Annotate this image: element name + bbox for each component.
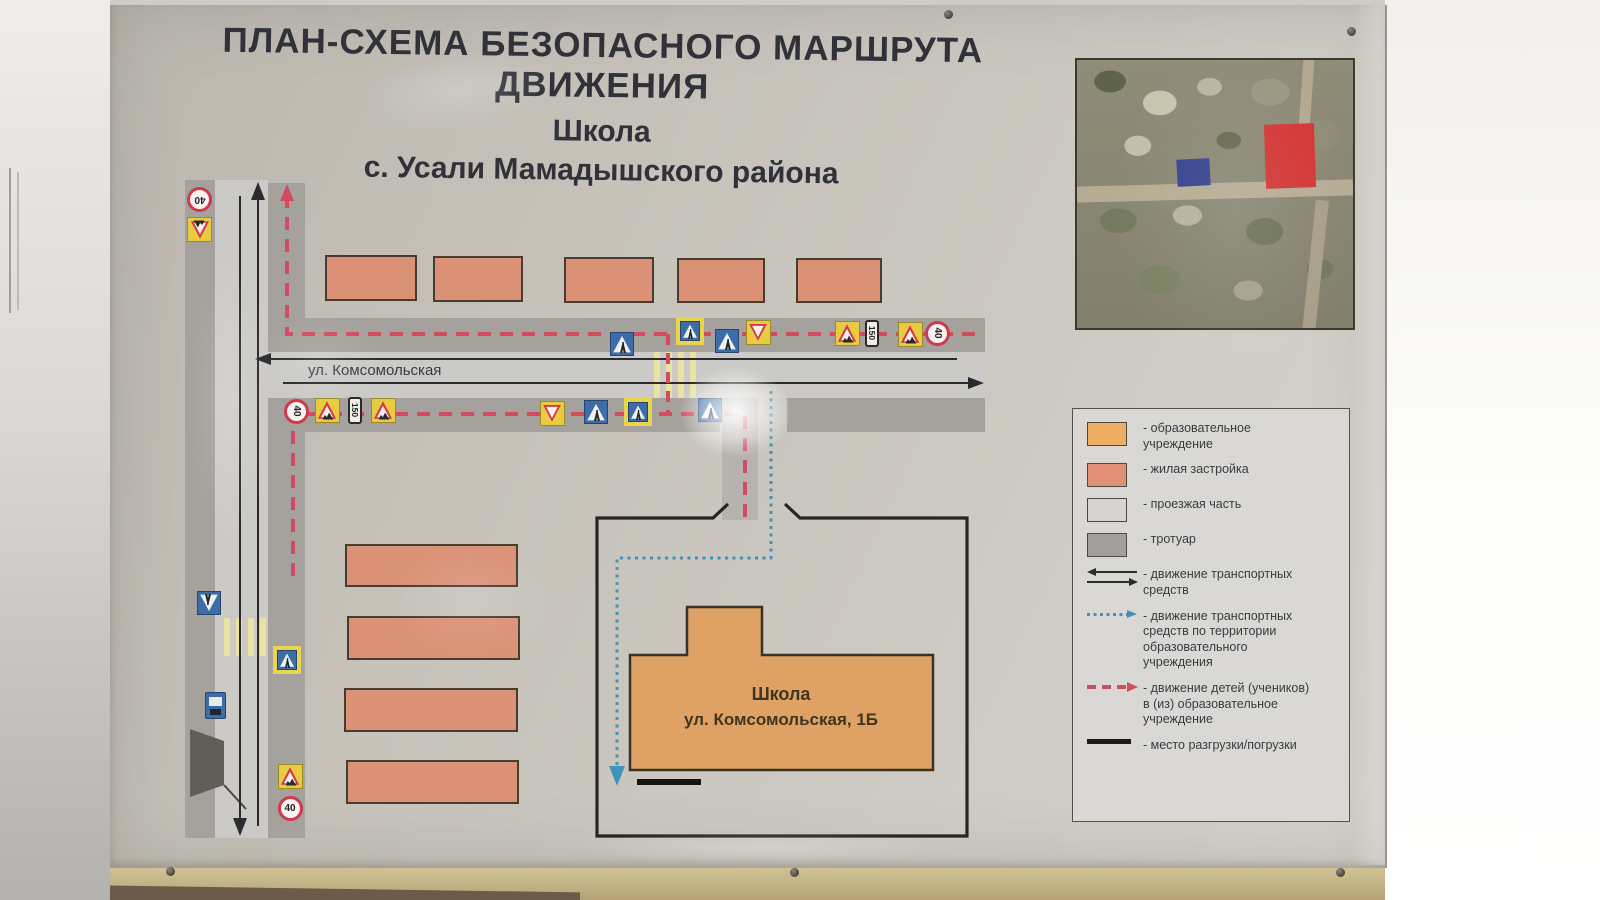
title-line-1: ПЛАН-СХЕМА БЕЗОПАСНОГО МАРШРУТА ДВИЖЕНИЯ bbox=[112, 19, 1093, 113]
residential-building bbox=[325, 255, 417, 301]
two-way-traffic-arrows-icon bbox=[1087, 568, 1143, 586]
legend-item: - образовательное учреждение bbox=[1087, 421, 1343, 452]
residential-building bbox=[345, 544, 518, 587]
residential-building bbox=[433, 256, 523, 302]
legend-item-label: - жилая застройка bbox=[1143, 462, 1313, 478]
speed-limit-40-sign-icon: 40 bbox=[922, 317, 954, 349]
dotted-blue-arrow-icon bbox=[1087, 610, 1143, 619]
poster-screw bbox=[166, 867, 175, 876]
pedestrian-crossing-sign-icon bbox=[711, 325, 743, 357]
pedestrian-crossing-zebra-left-road bbox=[224, 618, 268, 656]
legend-item: - движение детей (учеников) в (из) образ… bbox=[1087, 681, 1343, 728]
distance-150-plate-icon: 150 bbox=[856, 317, 888, 349]
legend-item: - движение транспортных средств bbox=[1087, 567, 1343, 598]
window-frame-left bbox=[0, 0, 110, 900]
street-south-sidewalk-east bbox=[787, 398, 985, 432]
legend-item-label: - движение транспортных средств по терри… bbox=[1143, 609, 1313, 672]
pedestrian-crossing-warning-sign-icon bbox=[271, 644, 303, 676]
yield-sign-icon bbox=[742, 316, 774, 348]
legend-item-label: - образовательное учреждение bbox=[1143, 421, 1313, 452]
residential-building bbox=[796, 258, 882, 303]
poster-screw bbox=[1336, 868, 1345, 877]
dashed-red-arrow-icon bbox=[1087, 682, 1143, 692]
children-warning-sign-icon bbox=[184, 214, 216, 246]
legend-item: - тротуар bbox=[1087, 532, 1343, 557]
legend-item-label: - движение транспортных средств bbox=[1143, 567, 1313, 598]
poster-screw bbox=[1347, 27, 1356, 36]
residential-building bbox=[344, 688, 518, 732]
photo-of-school-route-poster: ПЛАН-СХЕМА БЕЗОПАСНОГО МАРШРУТА ДВИЖЕНИЯ… bbox=[0, 0, 1600, 900]
legend-item: - жилая застройка bbox=[1087, 462, 1343, 487]
window-light-right bbox=[1385, 0, 1600, 900]
legend-color-swatch bbox=[1087, 422, 1143, 446]
residential-building bbox=[346, 760, 519, 804]
speed-limit-40-sign-icon: 40 bbox=[281, 395, 313, 427]
children-warning-sign-icon bbox=[367, 394, 399, 426]
legend-item: - проезжая часть bbox=[1087, 497, 1343, 522]
pedestrian-crossing-sign-icon bbox=[606, 328, 638, 360]
window-frame-edge bbox=[17, 172, 19, 310]
children-warning-sign-icon bbox=[274, 760, 306, 792]
legend-color-swatch bbox=[1087, 498, 1143, 522]
school-driveway bbox=[722, 398, 758, 520]
residential-building bbox=[564, 257, 654, 303]
legend-item-label: - место разгрузки/погрузки bbox=[1143, 738, 1313, 754]
solid-line-icon bbox=[1087, 739, 1143, 744]
left-road-west-sidewalk bbox=[185, 180, 215, 838]
pedestrian-crossing-warning-sign-icon bbox=[674, 315, 706, 347]
poster-screw bbox=[944, 10, 953, 19]
school-label-line-1: Школа bbox=[631, 684, 931, 705]
residential-building bbox=[677, 258, 765, 303]
window-frame-edge bbox=[9, 168, 11, 313]
yield-sign-icon bbox=[536, 397, 568, 429]
legend-item-label: - движение детей (учеников) в (из) образ… bbox=[1143, 681, 1313, 728]
legend-item: - место разгрузки/погрузки bbox=[1087, 738, 1343, 754]
school-building-label: Школа ул. Комсомольская, 1Б bbox=[631, 684, 931, 730]
poster-screw bbox=[790, 868, 799, 877]
left-road-roadway bbox=[215, 180, 268, 838]
speed-limit-40-sign-icon: 40 bbox=[274, 792, 306, 824]
street-name-label: ул. Комсомольская bbox=[308, 362, 441, 379]
legend-color-swatch bbox=[1087, 463, 1143, 487]
school-label-line-2: ул. Комсомольская, 1Б bbox=[631, 710, 931, 730]
satellite-road bbox=[1302, 200, 1329, 330]
poster-title: ПЛАН-СХЕМА БЕЗОПАСНОГО МАРШРУТА ДВИЖЕНИЯ… bbox=[111, 19, 1093, 195]
pedestrian-crossing-warning-sign-icon bbox=[622, 396, 654, 428]
legend-item-label: - тротуар bbox=[1143, 532, 1313, 548]
speed-limit-40-sign-icon: 40 bbox=[184, 184, 216, 216]
legend-item: - движение транспортных средств по терри… bbox=[1087, 609, 1343, 672]
pedestrian-crossing-zebra-street bbox=[654, 352, 696, 398]
residential-building bbox=[347, 616, 520, 660]
legend-item-label: - проезжая часть bbox=[1143, 497, 1313, 513]
legend-color-swatch bbox=[1087, 533, 1143, 557]
legend: - образовательное учреждение- жилая заст… bbox=[1072, 408, 1350, 822]
satellite-photo-inset bbox=[1075, 58, 1355, 330]
pedestrian-crossing-sign-icon bbox=[694, 394, 726, 426]
pedestrian-crossing-sign-icon bbox=[580, 396, 612, 428]
satellite-school-highlight bbox=[1264, 123, 1316, 189]
pedestrian-crossing-sign-icon bbox=[193, 587, 225, 619]
bus-stop-sign-icon bbox=[199, 689, 231, 721]
satellite-blue-building-highlight bbox=[1176, 158, 1210, 187]
